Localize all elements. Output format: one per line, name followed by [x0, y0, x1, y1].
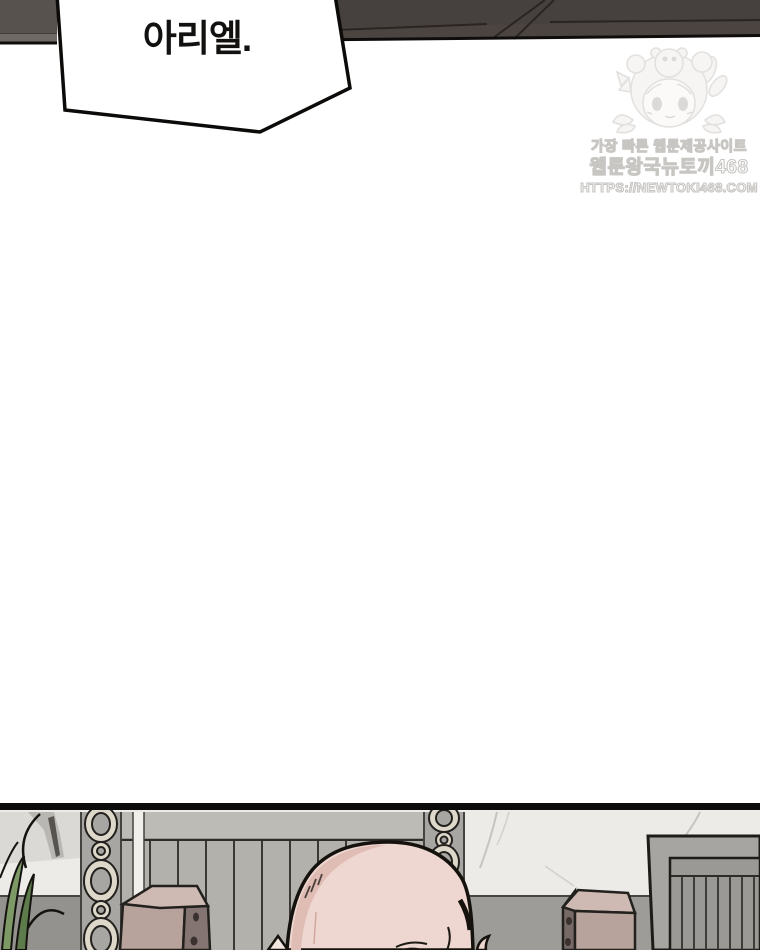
watermark-line-2: 웹툰왕국뉴토끼468 — [580, 156, 758, 179]
watermark-character-icon — [599, 42, 739, 137]
chain-left-icon — [80, 806, 122, 950]
panel-border — [0, 803, 760, 810]
watermark: 가장 빠른 웹툰제공사이트 웹툰왕국뉴토끼468 HTTPS://NEWTOKI… — [580, 42, 758, 197]
stone-block-right — [563, 890, 635, 950]
webtoon-page: 아리엘. — [0, 0, 760, 950]
watermark-line-1: 가장 빠른 웹툰제공사이트 — [580, 137, 758, 156]
watermark-site-url: HTTPS://NEWTOKI468.COM — [580, 179, 758, 197]
speech-bubble-text: 아리엘. — [107, 20, 287, 59]
speech-bubble: 아리엘. — [0, 0, 400, 140]
comic-panel-bottom — [0, 803, 760, 950]
wooden-gate — [648, 836, 760, 950]
